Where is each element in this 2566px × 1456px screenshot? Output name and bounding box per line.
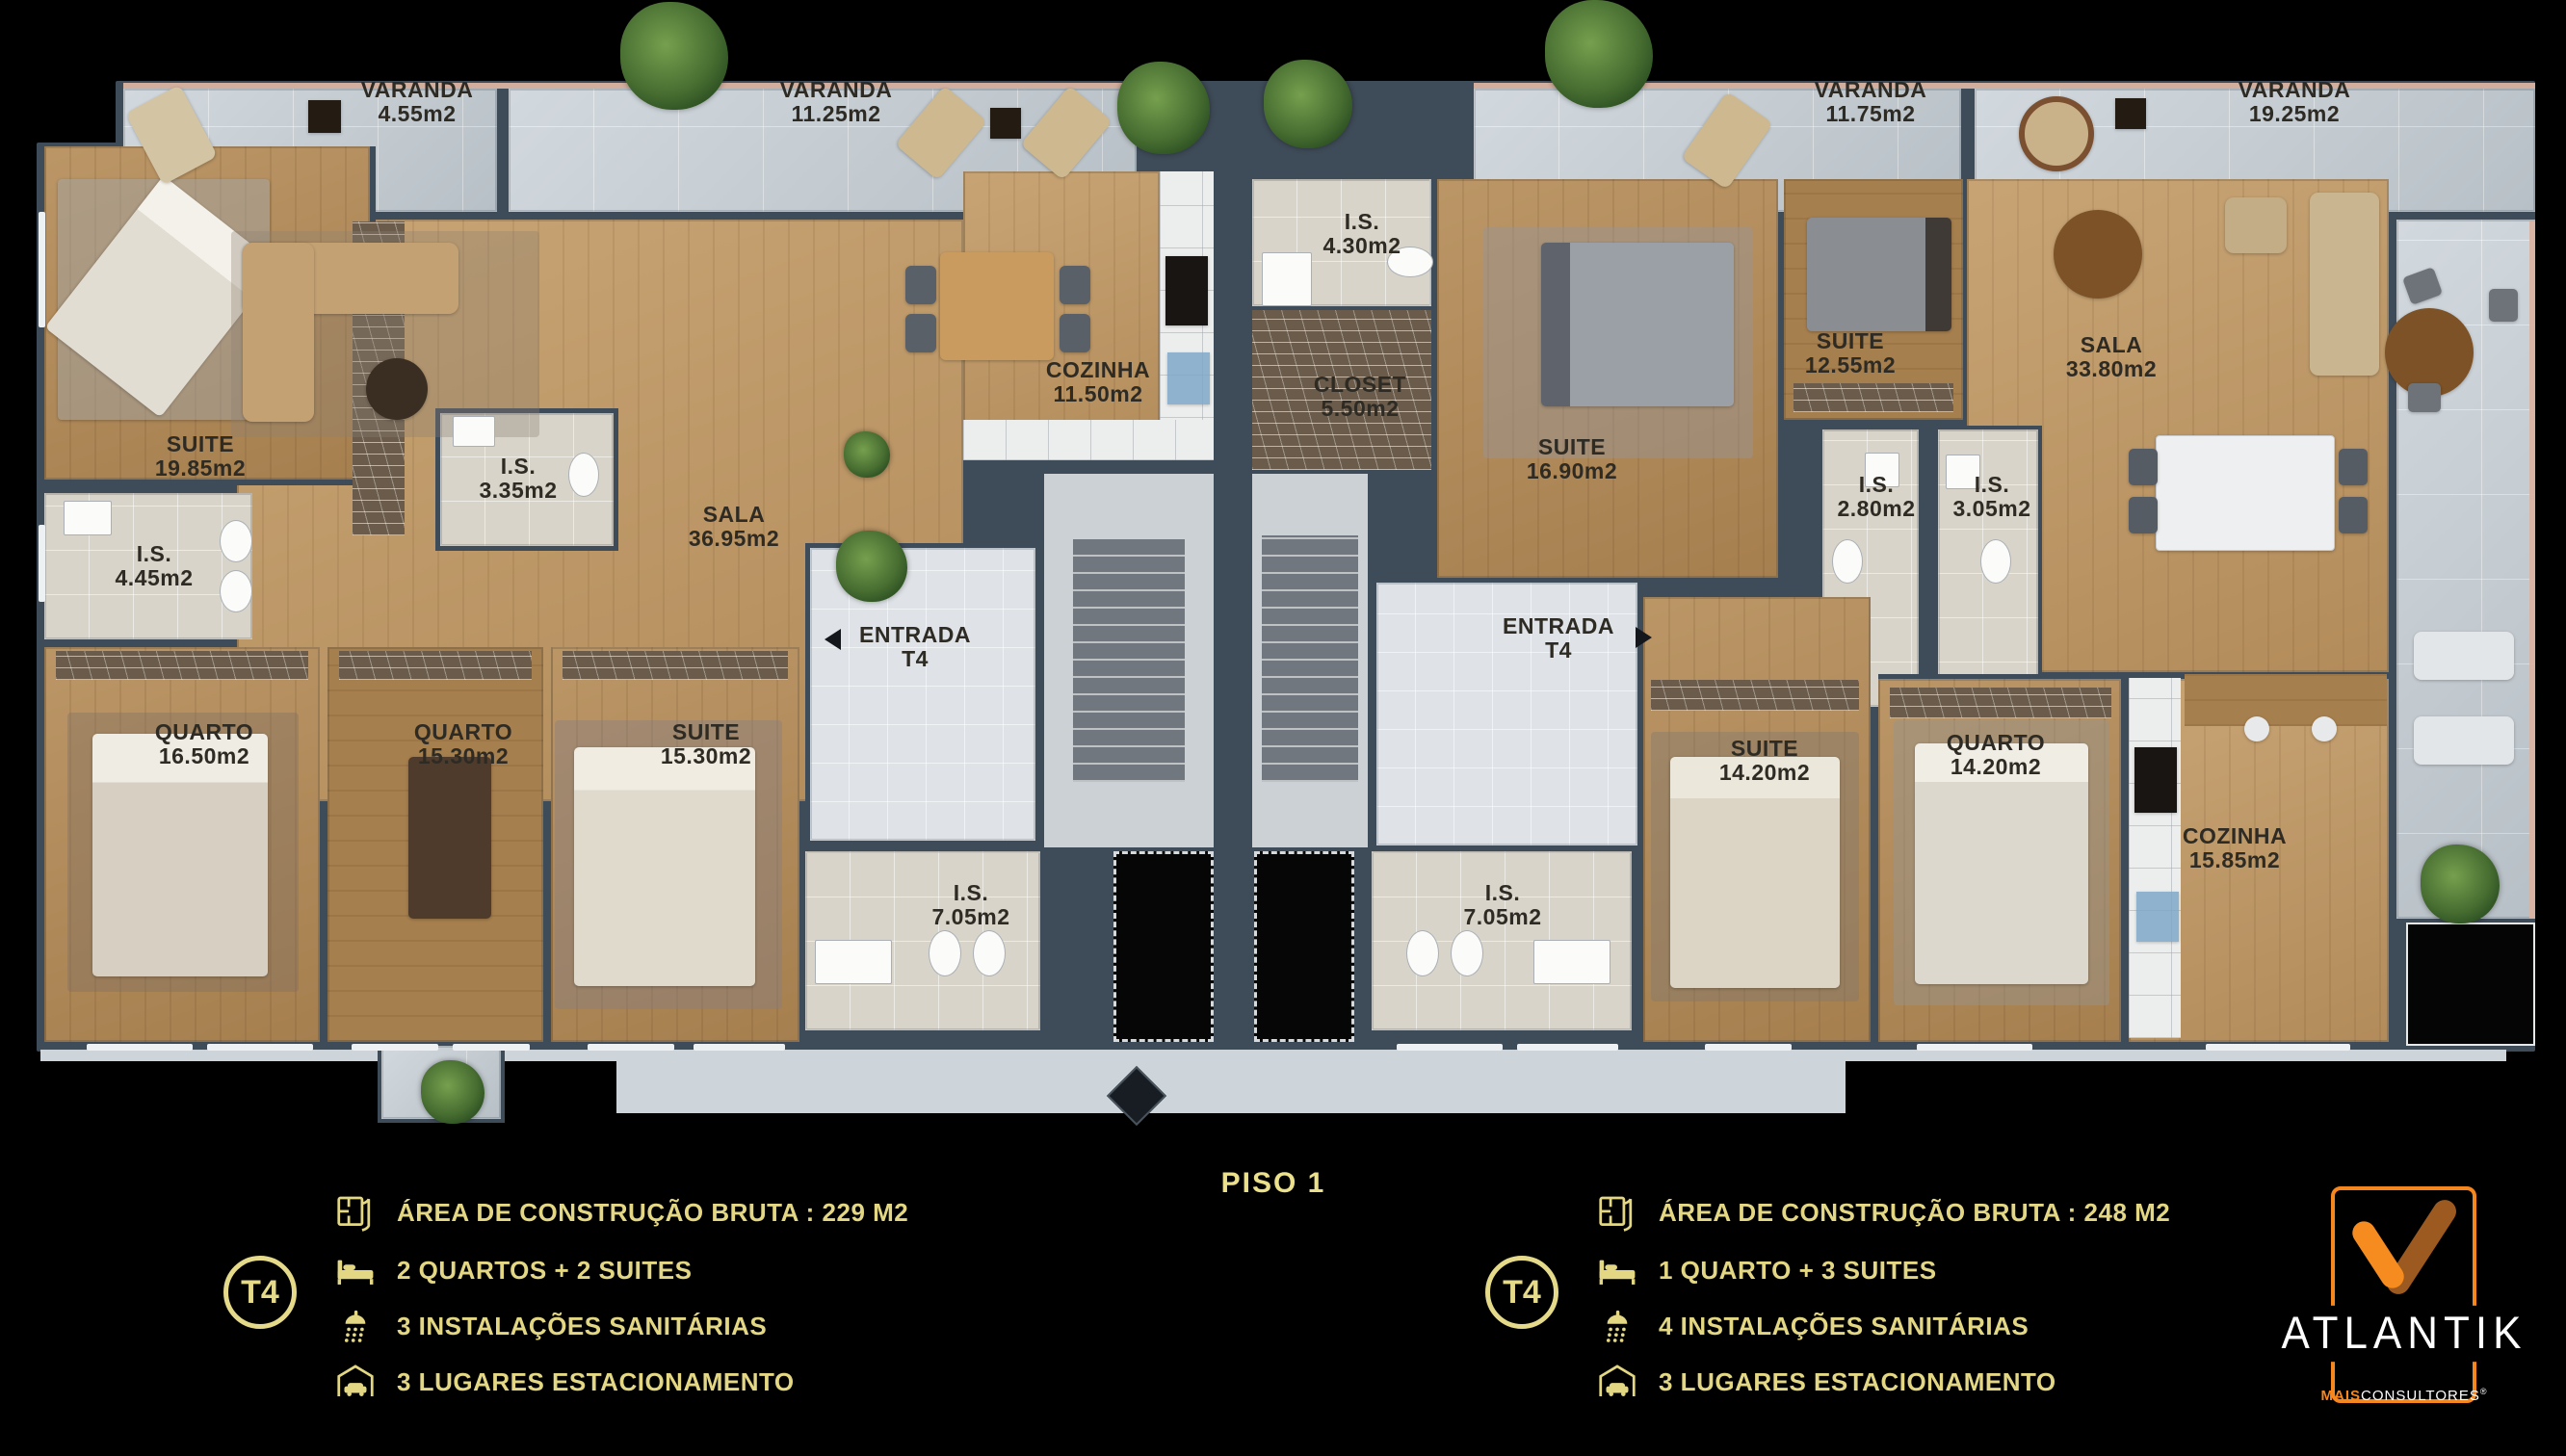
window [39,525,45,602]
plant-icon [836,531,907,602]
entrance-arrow-icon [1636,627,1652,648]
floorplan-poster: VARANDA4.55m2VARANDA11.25m2VARANDA11.75m… [0,0,2566,1456]
fixture-vanity [1533,940,1610,984]
fixture-toilet [1406,930,1439,976]
furniture-coffee-table [366,358,428,420]
furniture-armchair [2225,197,2287,253]
floorplan-icon [333,1190,378,1235]
plant-icon [1117,62,1210,154]
floorplan-icon [1595,1190,1639,1235]
furniture-bed [1670,757,1840,988]
elevator-shaft-right [1254,851,1354,1042]
fixture-bidet [1451,930,1483,976]
fixture-bidet [973,930,1006,976]
furniture-chair [905,314,936,352]
fixture-bidet [220,570,252,612]
stair-treads-right [1262,535,1358,782]
logo-frame-icon [2331,1186,2476,1403]
furniture-glass-door [2136,892,2179,942]
furniture-side-table [2115,98,2146,129]
fixture-toilet [220,520,252,562]
fixture-toilet [568,453,599,497]
kitchen-window-counter [963,420,1214,460]
feature-bedrooms: 2 QUARTOS + 2 SUITES [397,1256,692,1286]
fixture-sink [1946,455,1980,489]
furniture-glass-door [1167,352,1210,404]
elevator-shaft-left [1113,851,1214,1042]
window [588,1044,674,1051]
floor-title: PISO 1 [1221,1167,1326,1200]
feature-bedrooms: 1 QUARTO + 3 SUITES [1659,1256,1937,1286]
plant-icon [620,2,728,110]
fixture-sink [1865,453,1899,487]
furniture-round-table [2054,210,2142,299]
furniture-dining-table [940,252,1054,360]
furniture-chair [2408,383,2441,412]
furniture-stool [2244,716,2269,741]
window [1517,1044,1618,1051]
closet-strip [1794,383,1953,412]
furniture-bed [1541,243,1734,406]
feature-area: ÁREA DE CONSTRUÇÃO BRUTA : 248 M2 [1659,1198,2170,1228]
closet-strip [563,651,788,680]
furniture-chair [1060,266,1090,304]
fixture-vanity [815,940,892,984]
furniture-dining-table [2156,435,2335,551]
plant-icon [844,431,890,478]
plant-icon [1264,60,1352,148]
window [352,1044,438,1051]
unit-badge: T4 [1485,1256,1558,1329]
furniture-bed [1807,218,1951,331]
room-closet-550 [1252,310,1431,470]
closet-strip [1651,680,1859,711]
furniture-bed [1915,743,2088,984]
furniture-lounger [2414,716,2514,765]
closet-strip [339,651,532,680]
kitchen-island [2185,674,2387,726]
fixture-toilet [1832,539,1863,584]
window [453,1044,530,1051]
furniture-chair [2129,449,2158,485]
furniture-desk [408,757,491,919]
garage-icon [333,1360,378,1404]
furniture-chair [2339,449,2368,485]
fixture-sink [64,501,112,535]
feature-parking: 3 LUGARES ESTACIONAMENTO [397,1367,795,1397]
closet-strip [56,651,308,680]
fixture-toilet [929,930,961,976]
entrance-arrow-icon [825,629,841,650]
furniture-sofa [243,243,314,422]
window [39,212,45,327]
entrance-walkway [616,1061,1846,1113]
furniture-chair [1060,314,1090,352]
furniture-side-table [308,100,341,133]
furniture-stove [1165,256,1208,325]
room-entrada-right [1372,578,1637,845]
window [1397,1044,1503,1051]
plant-icon [2421,845,2500,923]
feature-bathrooms: 3 INSTALAÇÕES SANITÁRIAS [397,1312,767,1341]
closet-strip [1890,688,2111,718]
fixture-sink [453,416,495,447]
unit-badge: T4 [223,1256,297,1329]
furniture-bed [92,734,268,976]
bed-icon [1595,1248,1639,1292]
furniture-chair [2129,497,2158,533]
fixture-toilet [1387,247,1433,277]
logo-subtitle: MAISCONSULTORES® [2321,1387,2488,1404]
window [207,1044,313,1051]
furniture-egg-chair [2019,96,2094,171]
logo-brand: ATLANTIK [2275,1306,2532,1362]
fixture-toilet [1980,539,2011,584]
furniture-sofa [2310,193,2379,376]
fixture-sink [1262,252,1312,306]
furniture-bed [574,747,755,986]
shower-icon [333,1304,378,1348]
feature-area: ÁREA DE CONSTRUÇÃO BRUTA : 229 M2 [397,1198,908,1228]
terrace-railing [2529,221,2535,919]
furniture-stool [2312,716,2337,741]
furniture-lounger [2414,632,2514,680]
furniture-side-table [990,108,1021,139]
feature-parking: 3 LUGARES ESTACIONAMENTO [1659,1367,2056,1397]
bottom-right-void [2408,924,2533,1044]
plant-icon [421,1060,484,1124]
garage-icon [1595,1360,1639,1404]
furniture-chair [2489,289,2518,322]
bed-icon [333,1248,378,1292]
furniture-chair [905,266,936,304]
plant-icon [1545,0,1653,108]
window [694,1044,785,1051]
furniture-chair [2339,497,2368,533]
window [87,1044,193,1051]
room-entrada-left [805,543,1040,845]
shower-icon [1595,1304,1639,1348]
window [1705,1044,1792,1051]
feature-bathrooms: 4 INSTALAÇÕES SANITÁRIAS [1659,1312,2029,1341]
stair-treads-left [1073,539,1185,782]
window [2206,1044,2350,1051]
kitchen-counter [2129,678,2181,1038]
window [1917,1044,2032,1051]
furniture-stove [2134,747,2177,813]
